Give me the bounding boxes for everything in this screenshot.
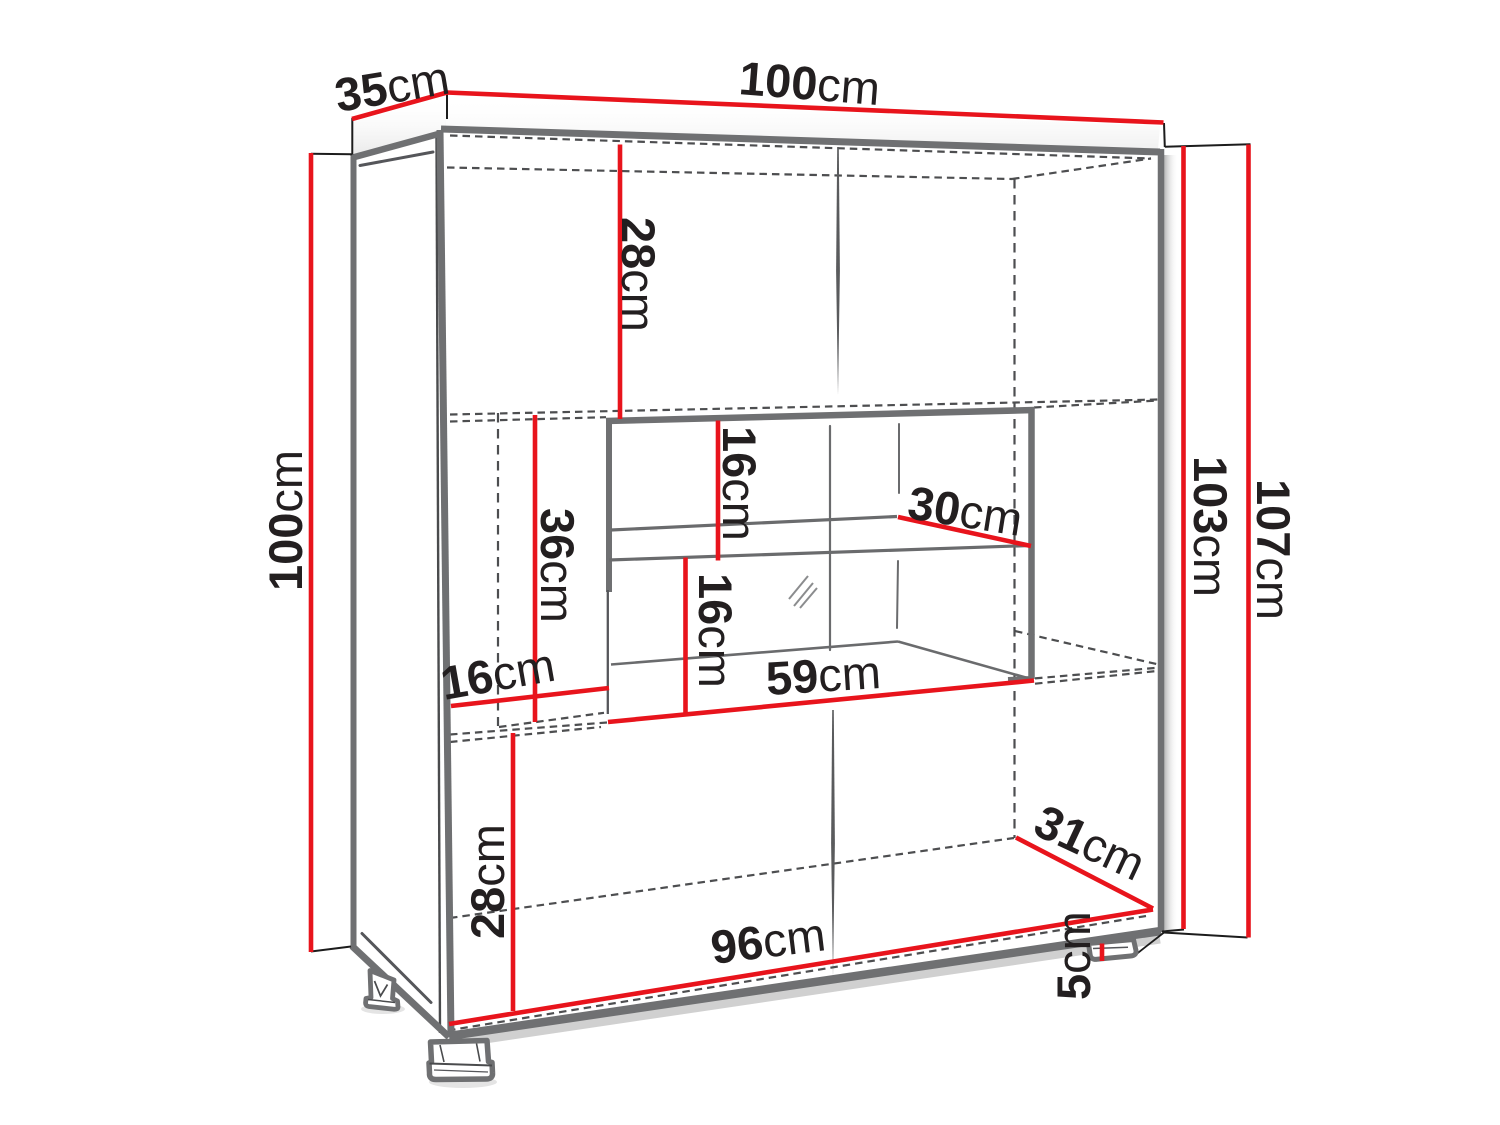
svg-text:28cm: 28cm (461, 824, 514, 939)
svg-text:36cm: 36cm (531, 508, 584, 623)
svg-text:100cm: 100cm (737, 51, 882, 115)
svg-text:107cm: 107cm (1247, 479, 1300, 620)
svg-text:28cm: 28cm (612, 217, 665, 332)
svg-text:16cm: 16cm (689, 573, 742, 688)
svg-text:5cm: 5cm (1047, 911, 1100, 1000)
svg-text:16cm: 16cm (713, 426, 766, 541)
svg-text:100cm: 100cm (259, 450, 312, 591)
svg-text:103cm: 103cm (1184, 456, 1237, 597)
svg-text:59cm: 59cm (764, 645, 882, 705)
